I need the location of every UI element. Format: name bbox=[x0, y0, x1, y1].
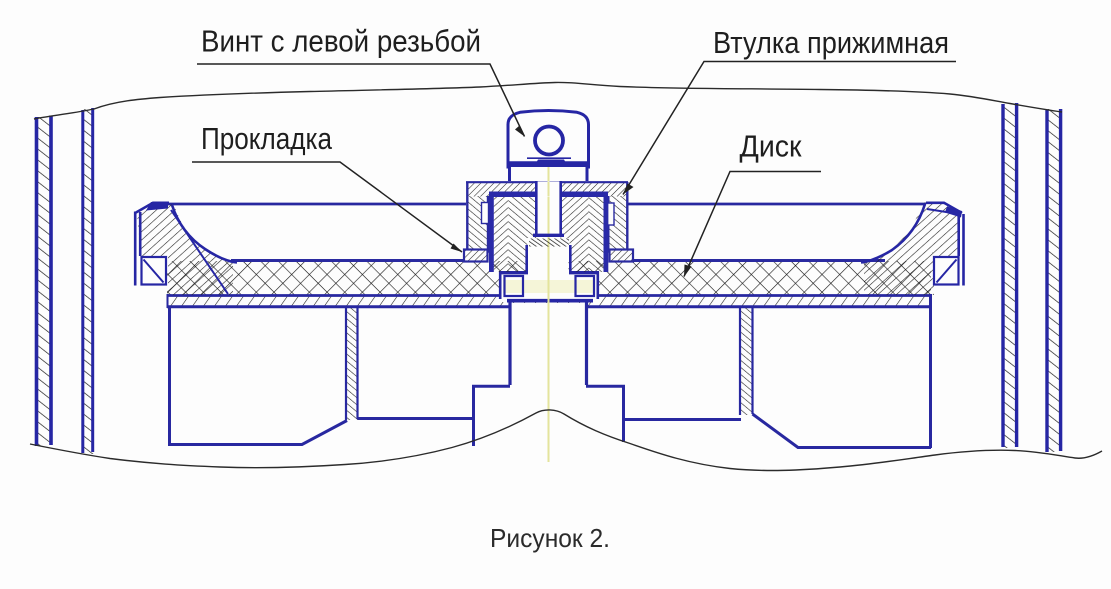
svg-text:Рисунок 2.: Рисунок 2. bbox=[490, 523, 610, 553]
svg-text:Прокладка: Прокладка bbox=[201, 121, 333, 156]
svg-text:Диск: Диск bbox=[740, 129, 802, 164]
svg-text:Винт с левой резьбой: Винт с левой резьбой bbox=[201, 24, 481, 59]
svg-text:Втулка прижимная: Втулка прижимная bbox=[713, 25, 949, 60]
